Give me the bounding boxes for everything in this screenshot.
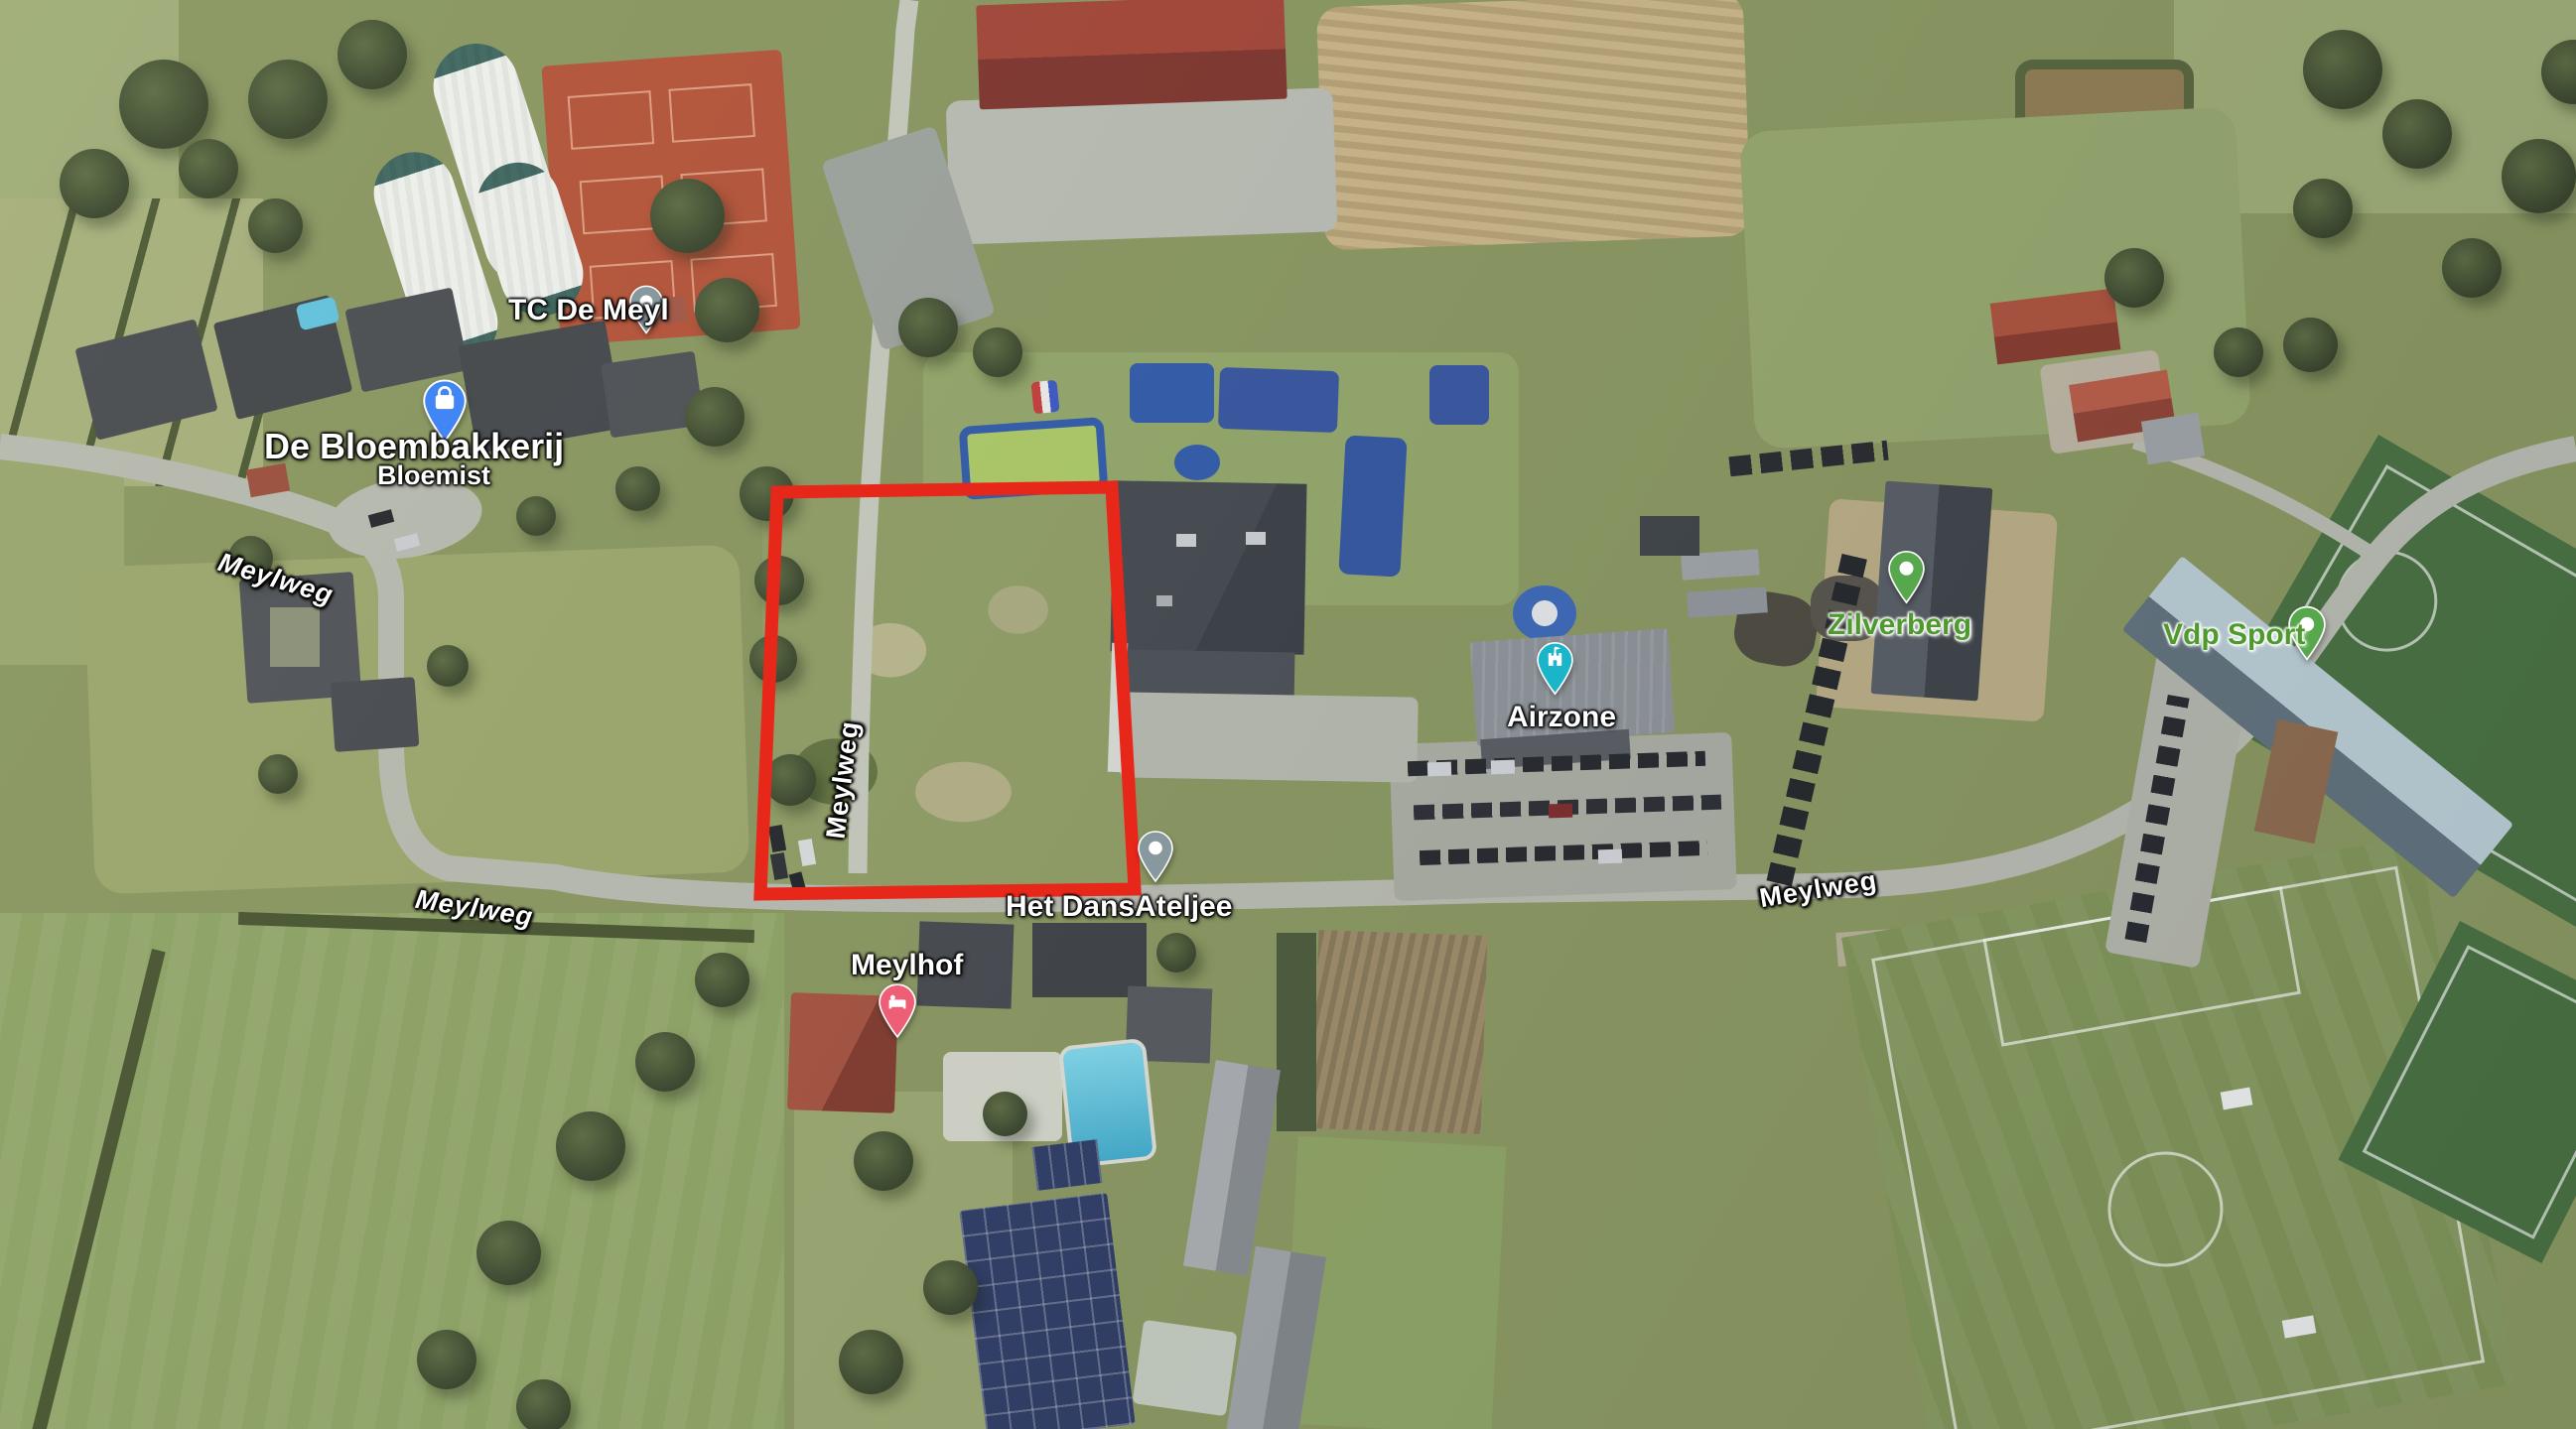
rooftop-unit — [1176, 534, 1196, 547]
tree — [898, 298, 958, 357]
vdp-sport-label[interactable]: Vdp Sport — [2163, 618, 2305, 652]
hedgerow — [1277, 933, 1316, 1131]
tree — [854, 1131, 913, 1191]
tree — [516, 496, 556, 536]
rooftop-unit — [1246, 532, 1266, 545]
tree — [2293, 179, 2353, 238]
concrete-apron — [946, 87, 1338, 245]
inflatable-obstacle — [1429, 365, 1489, 425]
house-roof — [344, 287, 469, 392]
tree — [973, 327, 1022, 377]
tree — [417, 1330, 476, 1389]
inflatable-obstacle — [1130, 363, 1214, 423]
barn-red-roof — [976, 0, 1287, 109]
tree — [258, 754, 298, 794]
tennis-court-lines — [568, 90, 655, 150]
tree — [119, 60, 208, 149]
tree — [615, 466, 660, 511]
inflatable-obstacle — [1218, 367, 1339, 433]
tennis-court-lines — [668, 83, 755, 143]
plowed-field — [1312, 930, 1488, 1134]
meylhof-pin-icon[interactable] — [879, 982, 916, 1039]
tree — [2214, 327, 2263, 377]
building-apron — [1119, 692, 1418, 782]
satellite-map-viewport[interactable]: Meylweg Meylweg Meylweg Meylweg TC De Me… — [0, 0, 2576, 1429]
dansateljee-building-roof — [1111, 480, 1307, 654]
parked-car — [368, 509, 395, 528]
tree — [749, 635, 797, 683]
storage-container — [1687, 586, 1768, 618]
field — [1739, 106, 2251, 450]
tree — [650, 179, 725, 253]
tree — [2442, 238, 2502, 298]
farm-shed — [2141, 413, 2205, 465]
tree — [2283, 318, 2338, 372]
plowed-field — [1316, 0, 1751, 250]
courtyard — [270, 607, 320, 667]
tree — [516, 1379, 571, 1429]
het-dansateljee-label[interactable]: Het DansAteljee — [1006, 890, 1232, 924]
meylhof-label[interactable]: Meylhof — [851, 949, 963, 982]
small-tent — [1030, 380, 1059, 415]
tree — [923, 1260, 978, 1315]
tree — [695, 278, 759, 342]
zilverberg-label[interactable]: Zilverberg — [1828, 608, 1971, 642]
parked-car — [1598, 849, 1622, 864]
tree — [2303, 30, 2382, 109]
tree — [635, 1032, 695, 1092]
het-dansateljee-pin-icon[interactable] — [1138, 830, 1173, 883]
shed-dark — [1640, 516, 1699, 556]
tree — [179, 139, 238, 198]
airzone-pin-icon[interactable] — [1537, 641, 1573, 696]
tree — [983, 1092, 1027, 1136]
tree — [839, 1330, 903, 1394]
parked-car — [1427, 762, 1451, 777]
tree — [556, 1111, 625, 1181]
carousel-inflatable — [1513, 585, 1576, 641]
barn-roof — [1183, 1060, 1281, 1276]
parked-car — [394, 533, 421, 552]
parked-car — [1549, 804, 1572, 819]
parcel-scrubland — [762, 488, 1128, 893]
inflatable-round — [1174, 445, 1220, 480]
tree — [1156, 933, 1196, 973]
house-roof — [331, 677, 420, 752]
airzone-label[interactable]: Airzone — [1507, 701, 1616, 734]
tree — [476, 1221, 541, 1285]
solar-panel-roof — [1032, 1139, 1103, 1191]
tree — [60, 149, 129, 218]
tree — [695, 953, 749, 1007]
tc-de-meyl-label[interactable]: TC De Meyl — [508, 294, 669, 327]
rooftop-unit — [1156, 595, 1172, 606]
zilverberg-pin-icon[interactable] — [1888, 549, 1925, 605]
de-bloembakkerij-subtitle[interactable]: Bloemist — [377, 460, 488, 491]
inflatable-slide — [1338, 435, 1407, 577]
shed-red — [246, 463, 290, 498]
inflatable-soccer-field — [959, 417, 1109, 500]
parked-car — [1491, 760, 1515, 775]
tree — [248, 60, 328, 139]
field-bottom-left — [0, 913, 784, 1429]
tree — [427, 645, 469, 687]
tree — [685, 387, 745, 447]
greenhouse — [1133, 1320, 1238, 1416]
tree — [754, 556, 804, 605]
tree — [248, 198, 303, 253]
tree — [2104, 248, 2164, 308]
tree — [740, 466, 794, 521]
solar-panel-roof — [959, 1193, 1136, 1429]
tree — [338, 20, 407, 89]
tree — [2502, 139, 2576, 213]
tree — [764, 754, 816, 806]
tree — [2382, 99, 2452, 169]
